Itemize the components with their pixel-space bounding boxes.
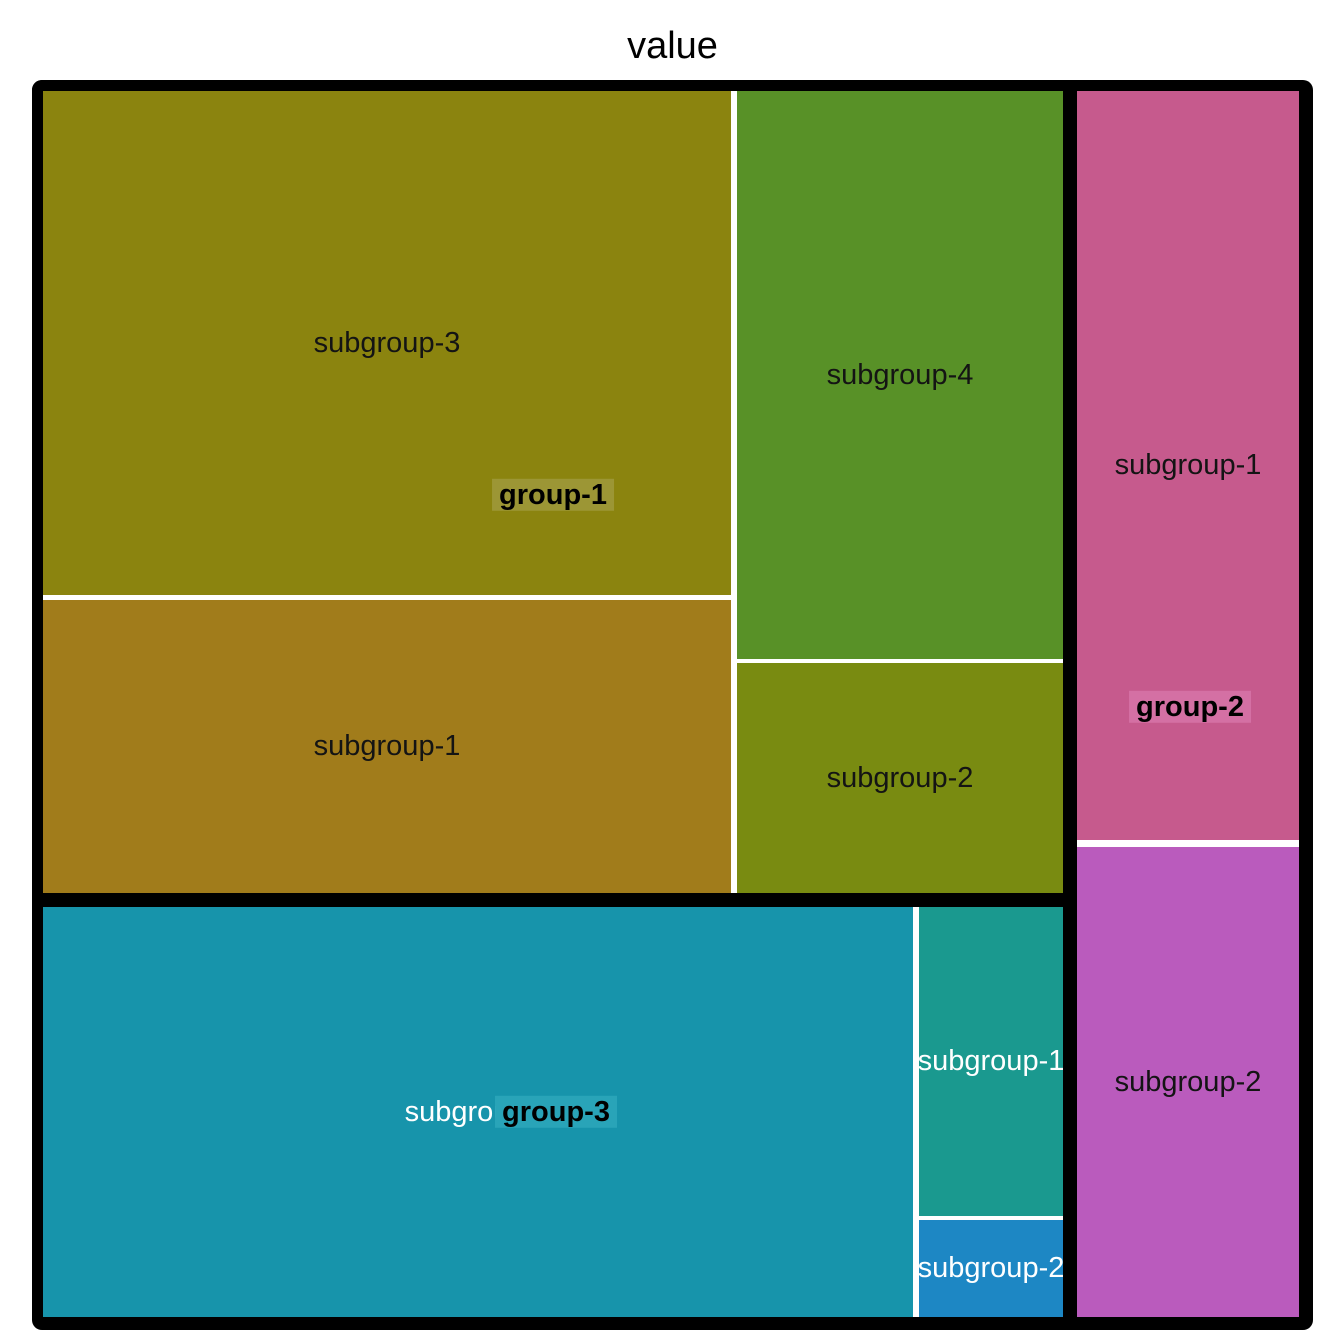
treemap-cell-label: subgroup-3 bbox=[314, 327, 461, 360]
treemap-cell-label: subgroup-1 bbox=[1115, 449, 1262, 482]
chart-title: value bbox=[32, 26, 1313, 68]
treemap-cell-group-2-subgroup-2[interactable]: subgroup-2 bbox=[1077, 847, 1299, 1317]
treemap-cell-label: subgroup-2 bbox=[1115, 1066, 1262, 1099]
treemap-group-label-group-2: group-2 bbox=[1129, 691, 1251, 723]
treemap-cell-group-1-subgroup-4[interactable]: subgroup-4 bbox=[737, 91, 1063, 659]
treemap-cell-group-2-subgroup-1[interactable]: subgroup-1 bbox=[1077, 91, 1299, 840]
treemap-cell-group-1-subgroup-3[interactable]: subgroup-3 bbox=[43, 91, 731, 595]
treemap-cell-group-3-subgroup-2[interactable]: subgroup-2 bbox=[919, 1220, 1063, 1317]
treemap-cell-label: subgroup-2 bbox=[827, 762, 974, 795]
treemap-chart: value subgroup-3subgroup-1subgroup-4subg… bbox=[0, 0, 1344, 1344]
treemap-cell-group-3-subgroup-1[interactable]: subgroup-1 bbox=[919, 907, 1063, 1216]
treemap-group-label-group-1: group-1 bbox=[492, 479, 614, 511]
treemap-cell-group-3-subgroup-3[interactable]: subgroup-3 bbox=[43, 907, 913, 1317]
treemap-cell-group-1-subgroup-2[interactable]: subgroup-2 bbox=[737, 663, 1063, 893]
treemap-group-label-group-3: group-3 bbox=[495, 1096, 617, 1128]
treemap-cell-label: subgroup-4 bbox=[827, 359, 974, 392]
treemap-cell-label: subgroup-1 bbox=[919, 1045, 1063, 1078]
treemap-cell-label: subgroup-2 bbox=[919, 1252, 1063, 1285]
treemap-cell-label: subgroup-1 bbox=[314, 730, 461, 763]
treemap-cell-group-1-subgroup-1[interactable]: subgroup-1 bbox=[43, 600, 731, 893]
